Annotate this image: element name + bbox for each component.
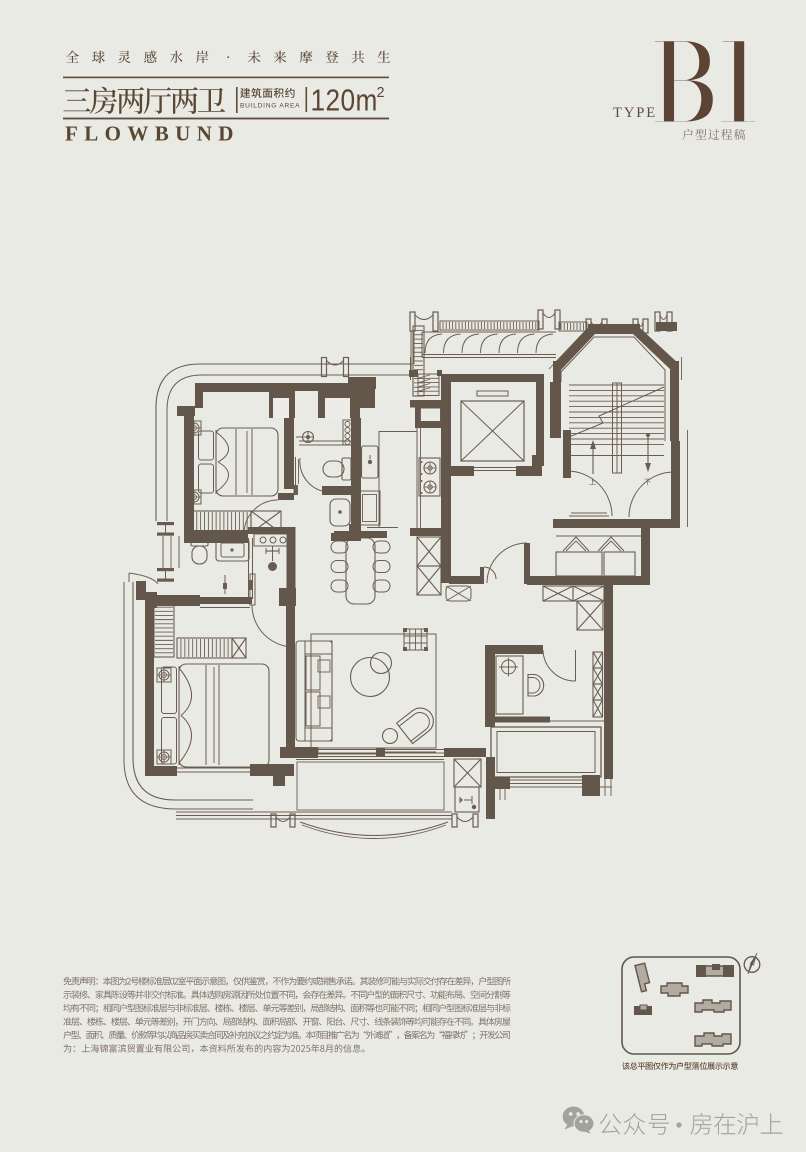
svg-text:TYPE: TYPE [613, 105, 657, 121]
svg-text:2: 2 [377, 85, 385, 101]
svg-text:FLOWBUND: FLOWBUND [65, 122, 240, 146]
svg-text:120m: 120m [311, 84, 378, 118]
svg-text:BUILDING AREA: BUILDING AREA [240, 103, 300, 110]
